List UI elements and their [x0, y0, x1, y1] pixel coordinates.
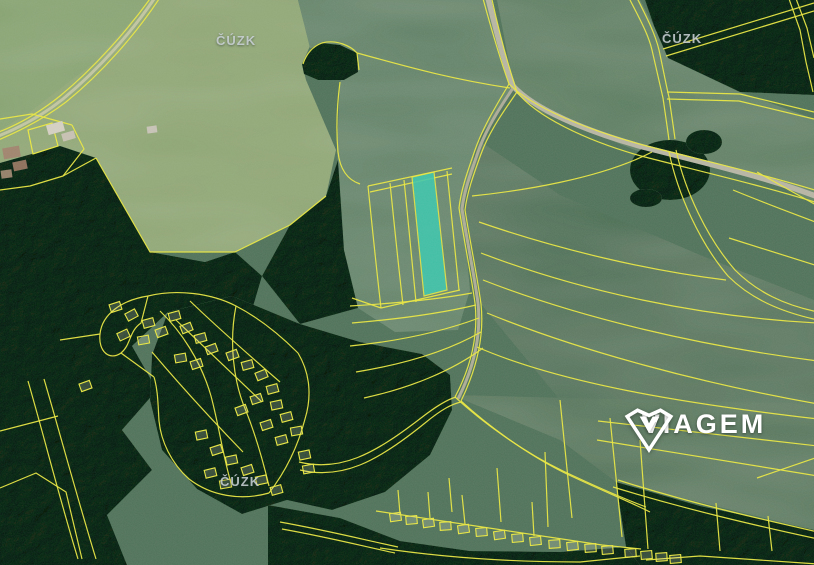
aerial-cadastral-map[interactable]: ČÚZK ČÚZK ČÚZK VIAGEM: [0, 0, 814, 565]
building-outline: [641, 551, 653, 560]
building-outline: [406, 516, 418, 525]
building-outline: [656, 553, 668, 562]
forest-clump: [630, 189, 662, 207]
building-outline: [137, 335, 149, 345]
farm-building: [147, 125, 158, 133]
building-outline: [225, 455, 237, 465]
building-outline: [174, 353, 186, 363]
cuzk-watermark-top-right: ČÚZK: [662, 31, 702, 46]
building-outline: [389, 512, 401, 521]
building-outline: [290, 426, 302, 436]
farm-building: [0, 169, 12, 178]
building-outline: [298, 450, 310, 460]
building-outline: [270, 400, 282, 410]
building-outline: [195, 430, 207, 440]
cuzk-watermark-bottom: ČÚZK: [220, 474, 260, 489]
building-outline: [567, 541, 579, 550]
building-outline: [602, 546, 614, 555]
forest-clump: [686, 130, 722, 154]
building-outline: [549, 540, 561, 549]
building-outline: [457, 524, 469, 533]
map-canvas: [0, 0, 814, 565]
building-outline: [493, 530, 505, 539]
building-outline: [440, 522, 452, 531]
viagem-logo: VIAGEM: [624, 406, 784, 440]
cuzk-watermark-top-left: ČÚZK: [216, 33, 256, 48]
building-outline: [530, 536, 542, 545]
building-outline: [625, 549, 637, 558]
building-outline: [512, 534, 524, 543]
building-outline: [670, 555, 682, 564]
building-outline: [476, 528, 488, 537]
viagem-diamond-icon: [624, 406, 674, 454]
building-outline: [585, 544, 597, 553]
building-outline: [422, 518, 434, 527]
building-outline: [302, 464, 314, 474]
